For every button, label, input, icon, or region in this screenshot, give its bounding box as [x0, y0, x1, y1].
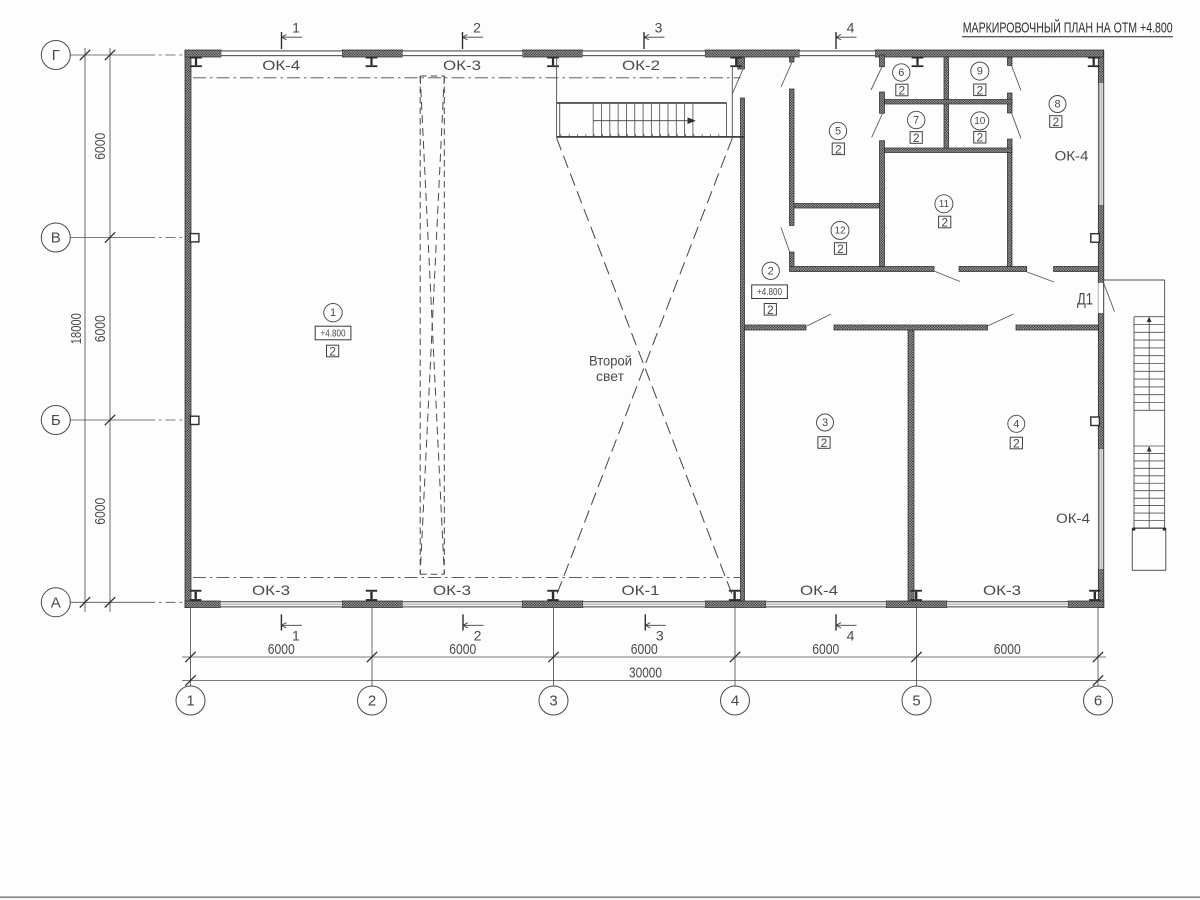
svg-text:5: 5: [835, 126, 841, 138]
svg-text:6000: 6000: [268, 641, 295, 658]
svg-text:2: 2: [368, 693, 376, 710]
svg-text:3: 3: [549, 693, 557, 710]
svg-text:Г: Г: [52, 47, 60, 64]
svg-text:+4.800: +4.800: [757, 286, 782, 298]
svg-text:2: 2: [1013, 437, 1020, 451]
svg-text:ОК-3: ОК-3: [252, 582, 290, 598]
svg-text:3: 3: [656, 628, 664, 644]
svg-text:2: 2: [976, 131, 983, 145]
svg-text:2: 2: [474, 628, 482, 644]
svg-text:1: 1: [292, 20, 300, 36]
svg-text:4: 4: [847, 20, 855, 36]
svg-text:4: 4: [1013, 418, 1019, 430]
svg-text:МАРКИРОВОЧНЫЙ ПЛАН НА ОТМ +4.8: МАРКИРОВОЧНЫЙ ПЛАН НА ОТМ +4.800: [963, 18, 1173, 36]
svg-text:ОК-2: ОК-2: [622, 57, 660, 73]
svg-text:2: 2: [821, 436, 828, 450]
svg-text:ОК-3: ОК-3: [443, 57, 481, 73]
svg-text:ОК-4: ОК-4: [262, 57, 300, 73]
svg-text:1: 1: [292, 628, 300, 644]
svg-text:2: 2: [1052, 115, 1059, 129]
svg-text:7: 7: [913, 115, 919, 127]
svg-text:свет: свет: [596, 369, 624, 384]
svg-text:2: 2: [913, 131, 920, 145]
svg-text:6: 6: [898, 67, 904, 79]
svg-text:6000: 6000: [92, 315, 109, 342]
svg-text:2: 2: [837, 242, 844, 256]
svg-text:ОК-4: ОК-4: [800, 582, 838, 598]
svg-text:18000: 18000: [68, 313, 85, 344]
svg-text:4: 4: [847, 628, 855, 644]
svg-text:В: В: [51, 230, 61, 247]
svg-text:А: А: [51, 594, 61, 611]
svg-text:1: 1: [186, 693, 194, 710]
svg-text:2: 2: [768, 265, 774, 277]
svg-text:8: 8: [1054, 99, 1060, 111]
svg-text:6000: 6000: [449, 641, 476, 658]
svg-text:ОК-4: ОК-4: [1055, 149, 1090, 164]
svg-text:5: 5: [912, 693, 920, 710]
svg-text:6000: 6000: [92, 133, 109, 160]
svg-text:12: 12: [834, 225, 846, 236]
svg-text:11: 11: [939, 199, 950, 210]
svg-text:30000: 30000: [629, 664, 662, 681]
svg-text:2: 2: [976, 83, 983, 97]
svg-text:ОК-4: ОК-4: [1056, 511, 1091, 526]
svg-text:4: 4: [731, 693, 739, 710]
svg-text:ОК-1: ОК-1: [622, 582, 660, 598]
svg-text:2: 2: [767, 303, 774, 317]
svg-text:ОК-3: ОК-3: [983, 582, 1021, 598]
svg-text:2: 2: [473, 20, 481, 36]
svg-text:9: 9: [977, 66, 983, 78]
svg-text:6000: 6000: [92, 498, 109, 525]
svg-text:3: 3: [655, 20, 663, 36]
svg-text:3: 3: [822, 417, 828, 429]
svg-text:10: 10: [974, 116, 986, 127]
svg-text:2: 2: [329, 345, 336, 359]
svg-text:6: 6: [1094, 693, 1102, 710]
svg-text:2: 2: [899, 84, 906, 98]
svg-text:Д1: Д1: [1077, 291, 1093, 309]
svg-text:Б: Б: [51, 412, 61, 429]
svg-text:6000: 6000: [994, 641, 1021, 658]
svg-text:2: 2: [835, 142, 842, 156]
svg-text:ОК-3: ОК-3: [433, 582, 471, 598]
svg-text:Второй: Второй: [589, 354, 632, 369]
svg-text:6000: 6000: [631, 641, 658, 658]
svg-text:+4.800: +4.800: [321, 328, 346, 340]
svg-text:6000: 6000: [812, 641, 839, 658]
svg-text:2: 2: [941, 216, 948, 230]
svg-text:1: 1: [330, 307, 336, 319]
